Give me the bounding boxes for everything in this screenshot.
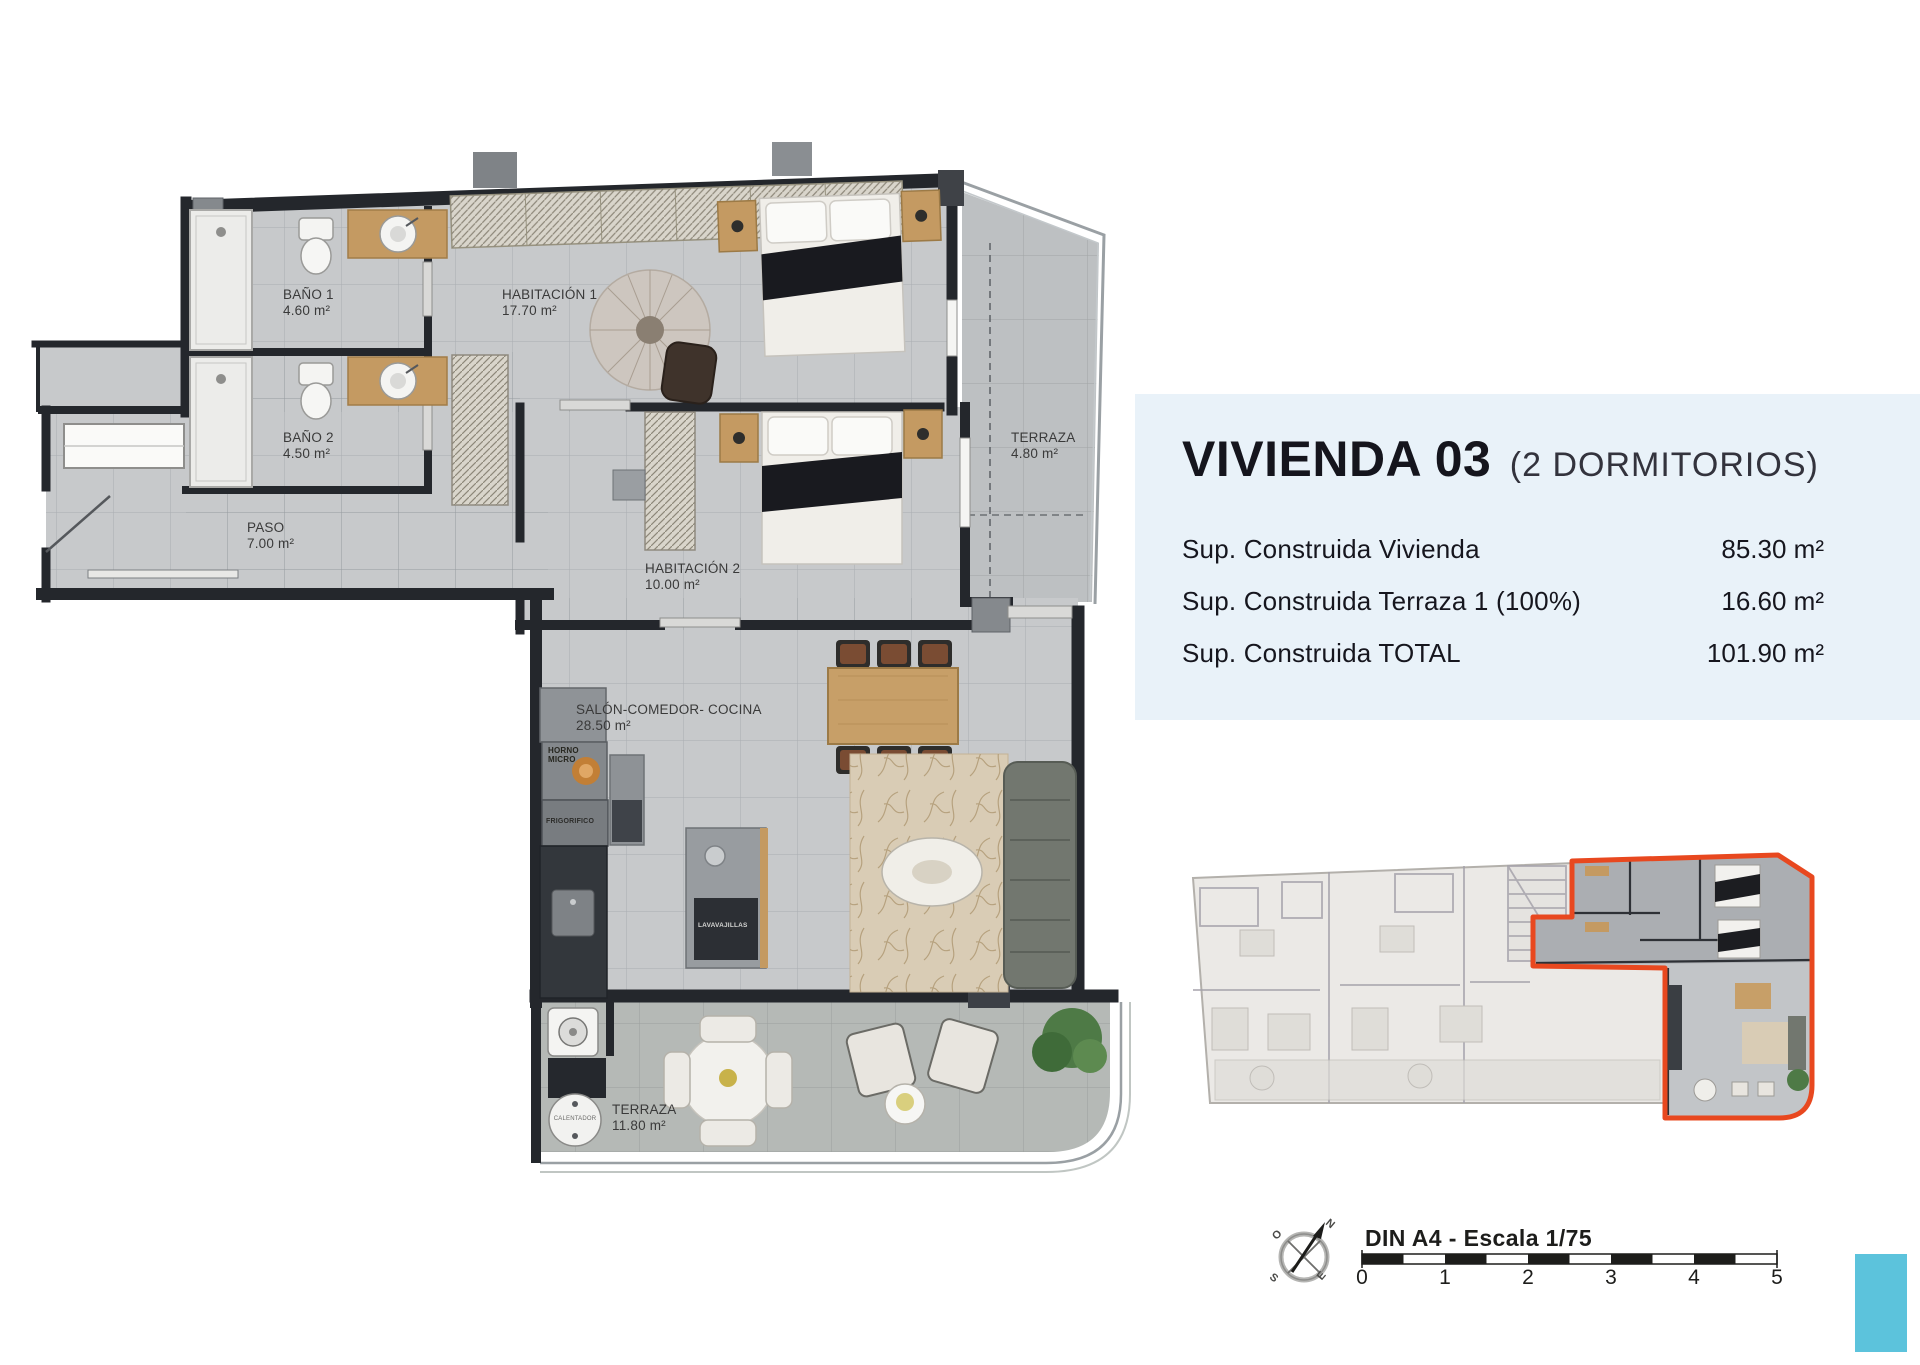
room-name: PASO	[247, 520, 294, 536]
surface-row: Sup. Construida TOTAL 101.90 m²	[1182, 638, 1824, 672]
room-area: 4.60 m²	[283, 303, 334, 319]
accent-rectangle	[1855, 1254, 1907, 1352]
room-area: 17.70 m²	[502, 303, 597, 319]
room-label-habitacion2: HABITACIÓN 2 10.00 m²	[645, 561, 740, 593]
room-area: 7.00 m²	[247, 536, 294, 552]
surface-label: Sup. Construida Vivienda	[1182, 534, 1480, 565]
room-name: TERRAZA	[1011, 430, 1075, 446]
unit-subtitle: (2 DORMITORIOS)	[1510, 446, 1819, 484]
info-title-row: VIVIENDA 03 (2 DORMITORIOS)	[1182, 430, 1819, 488]
info-panel: VIVIENDA 03 (2 DORMITORIOS) Sup. Constru…	[1135, 394, 1920, 720]
bedroom2-furniture	[613, 410, 942, 564]
room-label-paso: PASO 7.00 m²	[247, 520, 294, 552]
appliance-text: FRIGORIFICO	[546, 818, 594, 825]
room-label-terraza1: TERRAZA 4.80 m²	[1011, 430, 1075, 462]
appliance-text: MICRO	[548, 755, 579, 764]
room-area: 28.50 m²	[576, 718, 762, 734]
appliance-label-calentador: CALENTADOR	[551, 1116, 599, 1122]
scale-tick: 1	[1430, 1266, 1460, 1290]
room-area: 4.50 m²	[283, 446, 334, 462]
room-name: BAÑO 2	[283, 430, 334, 446]
appliance-text: HORNO	[548, 746, 579, 755]
room-area: 10.00 m²	[645, 577, 740, 593]
surface-label: Sup. Construida TOTAL	[1182, 638, 1461, 669]
room-label-bano2: BAÑO 2 4.50 m²	[283, 430, 334, 462]
scale-tick: 2	[1513, 1266, 1543, 1290]
appliance-label-lavavajillas: LAVAVAJILLAS	[698, 922, 748, 929]
appliance-label-horno: HORNO MICRO	[548, 746, 579, 764]
room-area: 11.80 m²	[612, 1118, 676, 1134]
room-area: 4.80 m²	[1011, 446, 1075, 462]
scale-bar	[1362, 1250, 1777, 1268]
entry-closet	[64, 424, 184, 468]
corridor-wardrobe	[452, 355, 508, 505]
room-label-habitacion1: HABITACIÓN 1 17.70 m²	[502, 287, 597, 319]
surface-value: 16.60 m²	[1721, 586, 1824, 617]
room-label-salon: SALÓN-COMEDOR- COCINA 28.50 m²	[576, 702, 762, 734]
room-name: BAÑO 1	[283, 287, 334, 303]
key-plan	[1193, 855, 1812, 1118]
scale-title: DIN A4 - Escala 1/75	[1365, 1225, 1592, 1252]
room-label-terraza2: TERRAZA 11.80 m²	[612, 1102, 676, 1134]
room-name: HABITACIÓN 2	[645, 561, 740, 577]
living-area	[850, 754, 1076, 992]
unit-title: VIVIENDA 03	[1182, 431, 1491, 487]
room-name: HABITACIÓN 1	[502, 287, 597, 303]
surface-row: Sup. Construida Vivienda 85.30 m²	[1182, 534, 1824, 568]
scale-tick: 0	[1347, 1266, 1377, 1290]
appliance-text: LAVAVAJILLAS	[698, 922, 748, 929]
appliance-label-frigorifico: FRIGORIFICO	[546, 818, 594, 825]
scale-tick: 3	[1596, 1266, 1626, 1290]
room-name: SALÓN-COMEDOR- COCINA	[576, 702, 762, 718]
surface-value: 85.30 m²	[1721, 534, 1824, 565]
scale-tick: 4	[1679, 1266, 1709, 1290]
scale-tick: 5	[1762, 1266, 1792, 1290]
surface-label: Sup. Construida Terraza 1 (100%)	[1182, 586, 1581, 617]
room-label-bano1: BAÑO 1 4.60 m²	[283, 287, 334, 319]
room-name: TERRAZA	[612, 1102, 676, 1118]
surface-row: Sup. Construida Terraza 1 (100%) 16.60 m…	[1182, 586, 1824, 620]
appliance-text: CALENTADOR	[551, 1116, 599, 1122]
surface-value: 101.90 m²	[1707, 638, 1824, 669]
